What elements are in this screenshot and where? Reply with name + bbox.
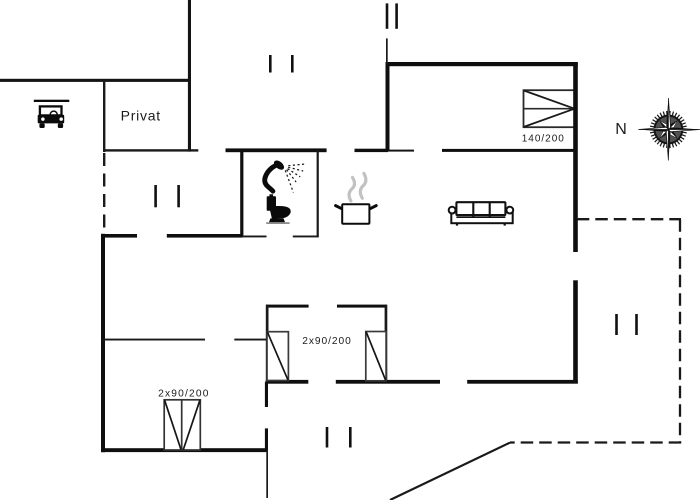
svg-text:140/200: 140/200 [522,133,565,144]
svg-text:2x90/200: 2x90/200 [302,336,352,347]
svg-text:N: N [615,121,627,138]
svg-text:2x90/200: 2x90/200 [158,389,210,400]
svg-text:Privat: Privat [121,108,161,124]
